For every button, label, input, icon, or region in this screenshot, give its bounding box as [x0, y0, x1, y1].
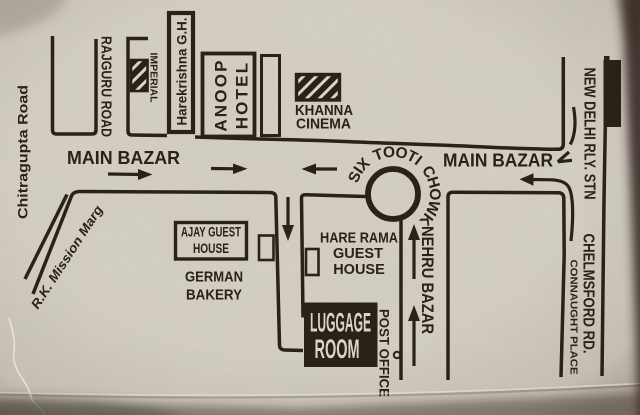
- svg-text:AJAY GUEST: AJAY GUEST: [181, 224, 241, 240]
- svg-text:POST OFFICE: POST OFFICE: [377, 309, 392, 397]
- svg-text:NEW DELHI RLY. STN: NEW DELHI RLY. STN: [581, 68, 598, 200]
- svg-text:MAIN BAZAR: MAIN BAZAR: [67, 147, 180, 168]
- svg-text:HOUSE: HOUSE: [333, 262, 385, 278]
- svg-text:GUEST: GUEST: [333, 246, 383, 262]
- svg-text:HOUSE: HOUSE: [193, 240, 229, 256]
- svg-text:IMPERIAL: IMPERIAL: [148, 53, 160, 104]
- svg-text:GERMAN: GERMAN: [185, 269, 243, 286]
- svg-text:LUGGAGE: LUGGAGE: [310, 308, 371, 338]
- svg-text:MAIN BAZAR: MAIN BAZAR: [443, 150, 553, 171]
- svg-text:RAJGURU ROAD: RAJGURU ROAD: [98, 36, 114, 137]
- svg-text:ANOOP: ANOOP: [212, 58, 231, 131]
- svg-text:CINEMA: CINEMA: [296, 116, 351, 133]
- svg-text:ROOM: ROOM: [315, 334, 360, 364]
- svg-text:Chitragupta Road: Chitragupta Road: [16, 85, 31, 219]
- svg-text:HOTEL: HOTEL: [233, 61, 252, 130]
- svg-text:HARE RAMA: HARE RAMA: [320, 231, 398, 247]
- svg-text:Harekrishna G.H.: Harekrishna G.H.: [175, 18, 190, 126]
- svg-text:CHELMSFORD RD.: CHELMSFORD RD.: [580, 234, 597, 354]
- svg-text:BAKERY: BAKERY: [186, 287, 242, 304]
- svg-text:CONNAUGHT PLACE: CONNAUGHT PLACE: [568, 260, 580, 375]
- svg-text:NEHRU BAZAR: NEHRU BAZAR: [418, 226, 437, 334]
